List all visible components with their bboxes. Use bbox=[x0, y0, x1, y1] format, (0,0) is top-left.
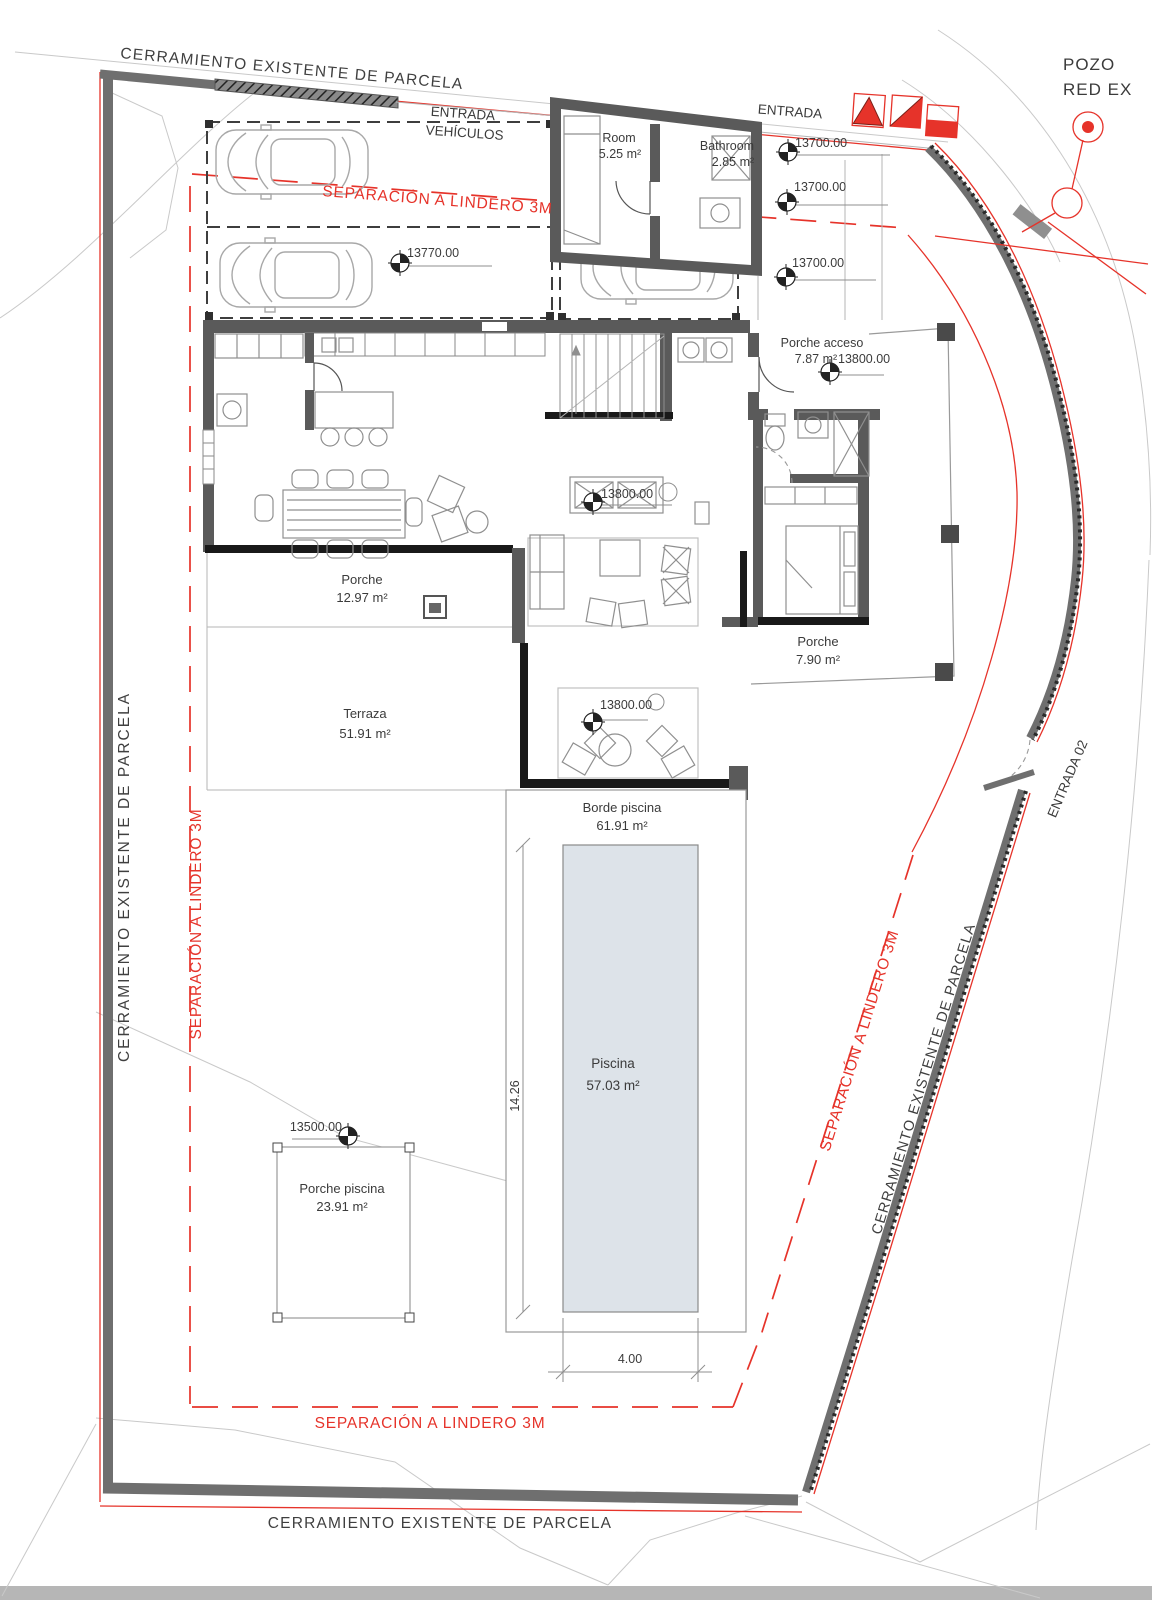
lounge-chairs bbox=[427, 475, 488, 542]
legend-symbols bbox=[852, 92, 959, 137]
entrada-vehiculos-label-2: VEHÍCULOS bbox=[425, 122, 504, 142]
elevation-label: 13800.00 bbox=[601, 487, 653, 501]
room-area-borde-piscina: 61.91 m² bbox=[596, 818, 648, 833]
elevation-label: 13700.00 bbox=[794, 180, 846, 194]
right-fence-lower bbox=[806, 790, 1022, 1492]
elevation-label: 13500.00 bbox=[290, 1120, 342, 1134]
guest-house bbox=[550, 97, 762, 276]
site-plan-page: CERRAMIENTO EXISTENTE DE PARCELA CERRAMI… bbox=[0, 0, 1152, 1600]
room-name-bathroom: Bathroom bbox=[700, 139, 754, 153]
setback-label-right: SEPARACIÓN A LINDERO 3M bbox=[817, 928, 903, 1153]
benchmark-icon bbox=[581, 709, 605, 735]
pozo-label-2: RED EX bbox=[1063, 80, 1132, 99]
room-name-borde-piscina: Borde piscina bbox=[583, 800, 663, 815]
room-name-porche-2: Porche bbox=[797, 634, 838, 649]
setback-label-top: SEPARACIÓN A LINDERO 3M bbox=[322, 183, 553, 218]
pool-length-dim-label: 14.26 bbox=[508, 1080, 522, 1111]
room-name-porche-piscina: Porche piscina bbox=[299, 1181, 385, 1196]
room-area-terraza: 51.91 m² bbox=[339, 726, 391, 741]
room-area-porche-piscina: 23.91 m² bbox=[316, 1199, 368, 1214]
setback-label-left: SEPARACIÓN A LINDERO 3M bbox=[188, 809, 205, 1040]
room-area-porche: 12.97 m² bbox=[336, 590, 388, 605]
bbq-icon bbox=[424, 596, 446, 618]
entrada-label: ENTRADA bbox=[757, 101, 822, 121]
room-area-porche-2: 7.90 m² bbox=[796, 652, 841, 667]
elevation-label: 13700.00 bbox=[792, 256, 844, 270]
setback-label-bottom: SEPARACIÓN A LINDERO 3M bbox=[315, 1415, 546, 1432]
entrada-vehiculos-label-1: ENTRADA bbox=[430, 104, 495, 123]
site-plan-drawing: CERRAMIENTO EXISTENTE DE PARCELA CERRAMI… bbox=[0, 0, 1152, 1600]
room-name-room: Room bbox=[602, 131, 635, 145]
left-fence-wall bbox=[103, 76, 113, 1488]
elevation-label: 13800.00 bbox=[838, 352, 890, 366]
pozo-label-1: POZO bbox=[1063, 55, 1115, 74]
room-area-piscina: 57.03 m² bbox=[586, 1078, 640, 1093]
room-area-room: 5.25 m² bbox=[599, 147, 641, 161]
bed-icon bbox=[786, 526, 858, 614]
room-name-porche: Porche bbox=[341, 572, 382, 587]
bottom-fence-wall bbox=[103, 1488, 798, 1500]
room-name-piscina: Piscina bbox=[591, 1056, 635, 1071]
gate-leaf bbox=[984, 772, 1034, 788]
fence-segment bbox=[1013, 204, 1053, 239]
fence-label-bottom: CERRAMIENTO EXISTENTE DE PARCELA bbox=[268, 1515, 612, 1532]
pool-porch bbox=[273, 1143, 414, 1322]
laundry-machines-icon bbox=[678, 338, 732, 362]
room-area-porche-acceso: 7.87 m² bbox=[795, 352, 837, 366]
room-name-porche-acceso: Porche acceso bbox=[781, 336, 864, 350]
triangle-symbol-icon bbox=[852, 93, 885, 127]
elevation-label: 13800.00 bbox=[600, 698, 652, 712]
stairs bbox=[560, 334, 664, 418]
pool-width-dim-label: 4.00 bbox=[618, 1352, 642, 1366]
room-name-terraza: Terraza bbox=[343, 706, 387, 721]
kitchen-counter bbox=[215, 334, 303, 426]
car-icon bbox=[220, 238, 372, 312]
main-house bbox=[203, 320, 959, 800]
half-diagonal-symbol-icon bbox=[890, 95, 922, 128]
entrada-02-label: ENTRADA 02 bbox=[1045, 738, 1091, 820]
elevation-label: 13700.00 bbox=[795, 136, 847, 150]
wardrobe-icon bbox=[765, 487, 857, 504]
fence-label-left: CERRAMIENTO EXISTENTE DE PARCELA bbox=[116, 692, 133, 1062]
room-area-bathroom: 2.85 m² bbox=[712, 155, 754, 169]
dining-table bbox=[255, 470, 422, 558]
road-band bbox=[0, 1586, 1152, 1600]
fence-label-top: CERRAMIENTO EXISTENTE DE PARCELA bbox=[120, 45, 465, 93]
elevation-label: 13770.00 bbox=[407, 246, 459, 260]
